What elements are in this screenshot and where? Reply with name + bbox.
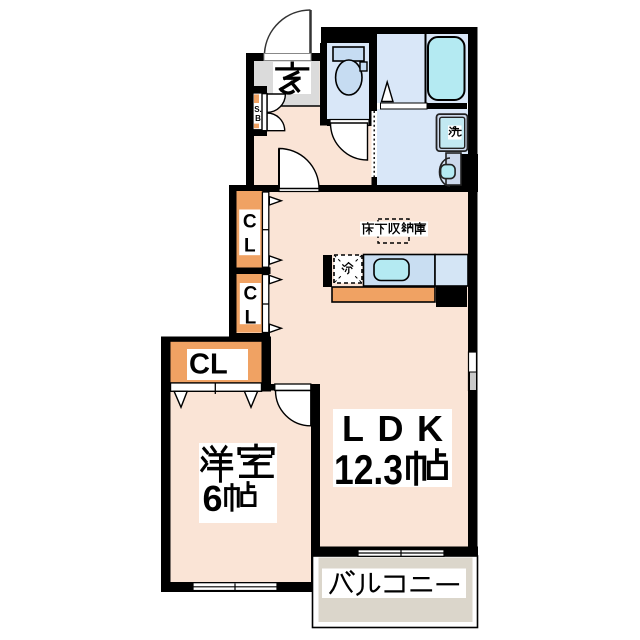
svg-text:12.3: 12.3 (334, 446, 403, 493)
svg-text:C: C (243, 212, 257, 233)
svg-text:LDK: LDK (342, 408, 457, 449)
svg-text:S.: S. (254, 105, 262, 114)
svg-text:L: L (245, 308, 257, 329)
svg-text:B: B (255, 114, 261, 123)
svg-text:6: 6 (203, 478, 223, 519)
svg-text:C: C (244, 284, 258, 305)
svg-text:CL: CL (189, 349, 228, 381)
svg-text:L: L (244, 236, 256, 257)
